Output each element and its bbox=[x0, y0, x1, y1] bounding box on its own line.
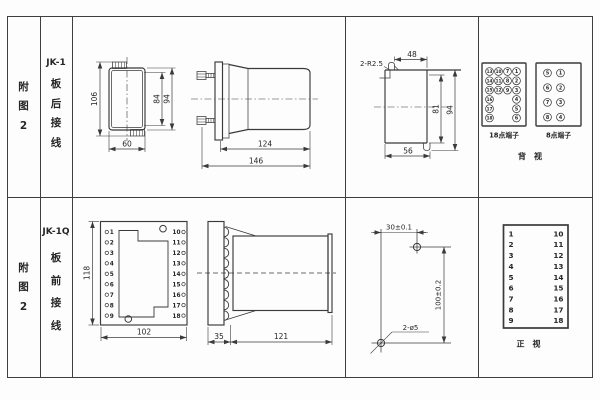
terminal-number: 13 bbox=[172, 262, 180, 268]
table-number: 10 bbox=[553, 229, 563, 238]
wiring-char: 接 bbox=[51, 298, 62, 309]
wiring-char: 板 bbox=[51, 253, 62, 264]
relay-side-view: 124 146 bbox=[191, 62, 318, 169]
model-name-bottom: JK-1Q bbox=[42, 228, 69, 237]
rear-and-side-view-drawing: 106 60 84 94 bbox=[72, 16, 345, 197]
dim-124: 124 bbox=[258, 140, 273, 149]
terminal-number: 3 bbox=[515, 88, 518, 94]
terminal8-label: 8点端子 bbox=[546, 131, 571, 140]
relay-front-plate-view: 1 2 3 4 5 6 7 8 9 10 11 12 13 14 15 16 1… bbox=[83, 222, 188, 342]
terminal-number: 6 bbox=[546, 85, 550, 91]
dim-100: 100±0.2 bbox=[435, 280, 443, 310]
figure-index-char: 图 bbox=[18, 282, 29, 293]
back-view-label: 背 视 bbox=[518, 151, 542, 161]
terminal-number: 5 bbox=[515, 106, 518, 112]
dim-30: 30±0.1 bbox=[386, 224, 412, 232]
model-cell-top: JK-1 板 后 接 线 bbox=[41, 17, 71, 196]
dim-94: 94 bbox=[163, 94, 172, 104]
dim-84: 84 bbox=[153, 94, 162, 104]
wiring-char: 接 bbox=[51, 118, 62, 129]
terminal-number: 11 bbox=[496, 78, 502, 83]
table-number: 9 bbox=[509, 316, 514, 325]
terminal-block-18: 13 14 15 16 17 18 10 11 12 7 8 9 1 2 3 4… bbox=[482, 63, 526, 140]
terminal-number: 1 bbox=[110, 230, 114, 236]
terminal18-label: 18点端子 bbox=[489, 131, 519, 140]
dim-146: 146 bbox=[249, 157, 264, 166]
front-view-label: 正 视 bbox=[517, 339, 541, 349]
terminal-number: 18 bbox=[487, 116, 493, 121]
front-view-terminal-table: 1 2 3 4 5 6 7 8 9 10 11 12 13 14 15 16 1… bbox=[478, 197, 593, 378]
relay-front-side-view: 35 121 bbox=[197, 222, 336, 346]
table-number: 17 bbox=[553, 305, 563, 314]
table-number: 3 bbox=[509, 251, 514, 260]
panel-hook-profile: 2-R2.5 48 81 94 56 bbox=[360, 50, 461, 159]
figure-index-char: 2 bbox=[20, 302, 27, 313]
terminal-number: 9 bbox=[506, 88, 510, 94]
wiring-char: 线 bbox=[51, 321, 62, 332]
terminal-number: 12 bbox=[172, 251, 180, 257]
figure-index-cell-top: 附 图 2 bbox=[8, 17, 39, 196]
table-number: 1 bbox=[509, 229, 514, 238]
terminal-number: 6 bbox=[515, 116, 519, 122]
mounting-bolt-top bbox=[197, 72, 215, 80]
wiring-char: 后 bbox=[51, 99, 62, 110]
figure-index-char: 附 bbox=[18, 263, 29, 274]
table-number: 8 bbox=[509, 305, 514, 314]
figure-index-char: 图 bbox=[18, 101, 29, 112]
terminal-number: 18 bbox=[172, 314, 180, 320]
terminal-number: 9 bbox=[110, 314, 114, 320]
terminal-number: 4 bbox=[110, 262, 114, 268]
mounting-profile-drawing: 2-R2.5 48 81 94 56 bbox=[345, 16, 478, 197]
mounting-bolt-bottom bbox=[197, 117, 215, 125]
plate-right-terminals: 10 11 12 13 14 15 16 17 18 bbox=[172, 230, 185, 320]
terminal-number: 15 bbox=[172, 282, 180, 288]
terminal-number: 7 bbox=[546, 100, 549, 106]
table-number: 2 bbox=[509, 240, 514, 249]
terminal-number: 5 bbox=[546, 71, 549, 77]
dim-102: 102 bbox=[137, 328, 152, 337]
table-number: 5 bbox=[509, 273, 514, 282]
table-number: 11 bbox=[553, 240, 563, 249]
terminal-number: 14 bbox=[487, 78, 493, 83]
relay-rear-view: 106 60 84 94 bbox=[90, 57, 176, 152]
table-number: 14 bbox=[553, 273, 563, 282]
terminal-number: 10 bbox=[496, 69, 502, 74]
terminal-number: 14 bbox=[172, 272, 180, 278]
terminal-number: 13 bbox=[487, 69, 493, 74]
terminal-number: 2 bbox=[559, 85, 562, 91]
model-name-top: JK-1 bbox=[46, 59, 66, 68]
terminal-block-8: 5 6 7 8 1 2 3 4 8点端子 bbox=[536, 63, 581, 140]
terminal-number: 10 bbox=[172, 230, 180, 236]
drilling-plan-drawing: 30±0.1 100±0.2 2-ø5 bbox=[345, 197, 478, 378]
plate-left-terminals: 1 2 3 4 5 6 7 8 9 bbox=[105, 230, 114, 320]
wiring-char: 板 bbox=[51, 79, 62, 90]
terminal-number: 4 bbox=[559, 115, 563, 121]
table-number: 16 bbox=[553, 295, 563, 304]
dim-48: 48 bbox=[407, 50, 417, 59]
terminal-number: 3 bbox=[110, 251, 114, 257]
table-number: 13 bbox=[553, 262, 563, 271]
dim-35: 35 bbox=[214, 332, 224, 341]
terminal-number: 17 bbox=[172, 303, 180, 309]
terminal-number: 8 bbox=[506, 79, 510, 85]
terminal-number: 7 bbox=[506, 69, 509, 75]
table-number: 4 bbox=[509, 262, 514, 271]
terminal-number: 5 bbox=[110, 272, 114, 278]
terminal-number: 6 bbox=[110, 282, 114, 288]
mounting-hole-top bbox=[160, 225, 167, 232]
terminal-number: 8 bbox=[546, 115, 550, 121]
table-number: 12 bbox=[553, 251, 563, 260]
terminal-number: 16 bbox=[487, 97, 493, 102]
dim-81: 81 bbox=[432, 104, 441, 114]
radius-callout: 2-R2.5 bbox=[360, 60, 383, 68]
terminal-number: 1 bbox=[559, 71, 562, 77]
terminal-number-table: 1 2 3 4 5 6 7 8 9 10 11 12 13 14 15 16 1… bbox=[504, 225, 569, 328]
figure-index-char: 2 bbox=[20, 121, 27, 132]
back-view-terminal-blocks: 13 14 15 16 17 18 10 11 12 7 8 9 1 2 3 4… bbox=[478, 16, 593, 197]
terminal-number: 1 bbox=[515, 69, 518, 75]
dim-56: 56 bbox=[403, 147, 413, 156]
terminal-number: 11 bbox=[172, 241, 180, 247]
model-cell-bottom: JK-1Q 板 前 接 线 bbox=[41, 198, 71, 377]
terminal-number: 7 bbox=[110, 293, 114, 299]
relay-installation-drawing-page: 附 图 2 附 图 2 JK-1 板 后 接 线 JK-1Q 板 前 接 线 bbox=[0, 0, 600, 400]
table-number: 18 bbox=[553, 316, 563, 325]
dim-121: 121 bbox=[274, 332, 289, 341]
terminal-number: 4 bbox=[515, 97, 519, 103]
drill-holes-layout: 30±0.1 100±0.2 2-ø5 bbox=[371, 224, 452, 354]
terminal-number: 12 bbox=[496, 88, 502, 93]
dim-60: 60 bbox=[122, 140, 132, 149]
hole-diameter-callout: 2-ø5 bbox=[403, 324, 419, 332]
dim-118: 118 bbox=[83, 266, 92, 281]
terminal-number: 15 bbox=[487, 88, 493, 93]
front-plate-and-side-view-drawing: 1 2 3 4 5 6 7 8 9 10 11 12 13 14 15 16 1… bbox=[72, 197, 345, 378]
terminal-number: 17 bbox=[487, 106, 493, 111]
terminal-number: 16 bbox=[172, 293, 180, 299]
table-number: 6 bbox=[509, 284, 514, 293]
table-number: 15 bbox=[553, 284, 563, 293]
dim-106: 106 bbox=[90, 92, 99, 107]
wiring-char: 前 bbox=[51, 276, 62, 287]
terminal-number: 2 bbox=[110, 241, 114, 247]
terminal-number: 2 bbox=[515, 79, 518, 85]
figure-index-cell-bottom: 附 图 2 bbox=[8, 198, 39, 377]
terminal-number: 3 bbox=[559, 100, 562, 106]
figure-index-char: 附 bbox=[18, 82, 29, 93]
wiring-char: 线 bbox=[51, 138, 62, 149]
table-number: 7 bbox=[509, 295, 514, 304]
terminal-number: 8 bbox=[110, 303, 114, 309]
dim-94-profile: 94 bbox=[446, 105, 455, 115]
